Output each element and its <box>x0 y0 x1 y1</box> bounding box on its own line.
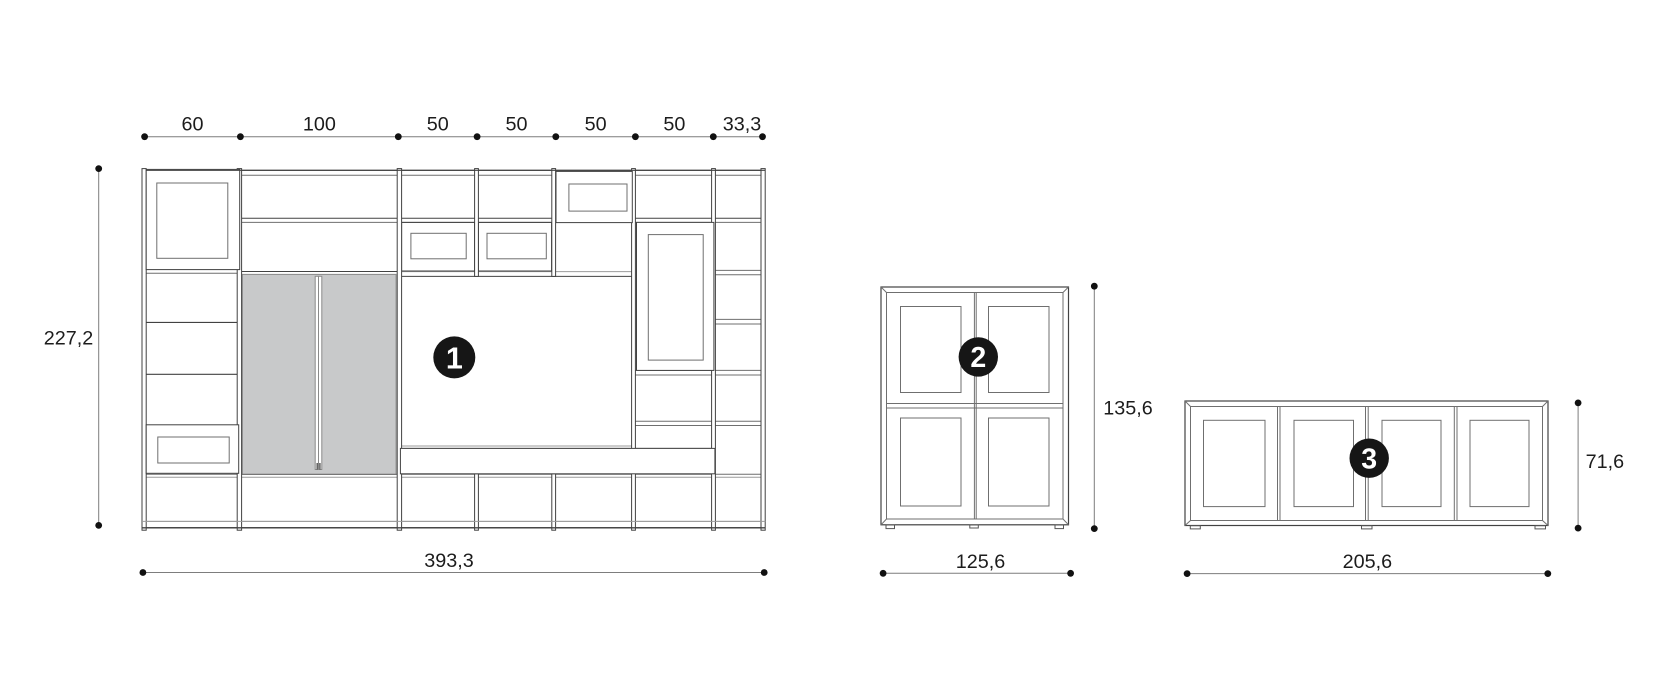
svg-text:1: 1 <box>446 341 463 375</box>
svg-text:50: 50 <box>505 114 527 136</box>
svg-text:50: 50 <box>663 114 685 136</box>
svg-text:60: 60 <box>181 114 203 136</box>
svg-text:50: 50 <box>585 114 607 136</box>
svg-text:50: 50 <box>427 114 449 136</box>
svg-text:227,2: 227,2 <box>44 328 94 350</box>
svg-text:100: 100 <box>303 114 336 136</box>
svg-text:135,6: 135,6 <box>1103 398 1153 420</box>
svg-text:71,6: 71,6 <box>1586 451 1625 473</box>
svg-text:205,6: 205,6 <box>1343 551 1393 573</box>
svg-text:393,3: 393,3 <box>424 550 474 572</box>
svg-text:125,6: 125,6 <box>956 551 1006 573</box>
svg-text:2: 2 <box>970 342 986 374</box>
svg-text:33,3: 33,3 <box>723 114 762 136</box>
svg-text:3: 3 <box>1361 444 1377 476</box>
